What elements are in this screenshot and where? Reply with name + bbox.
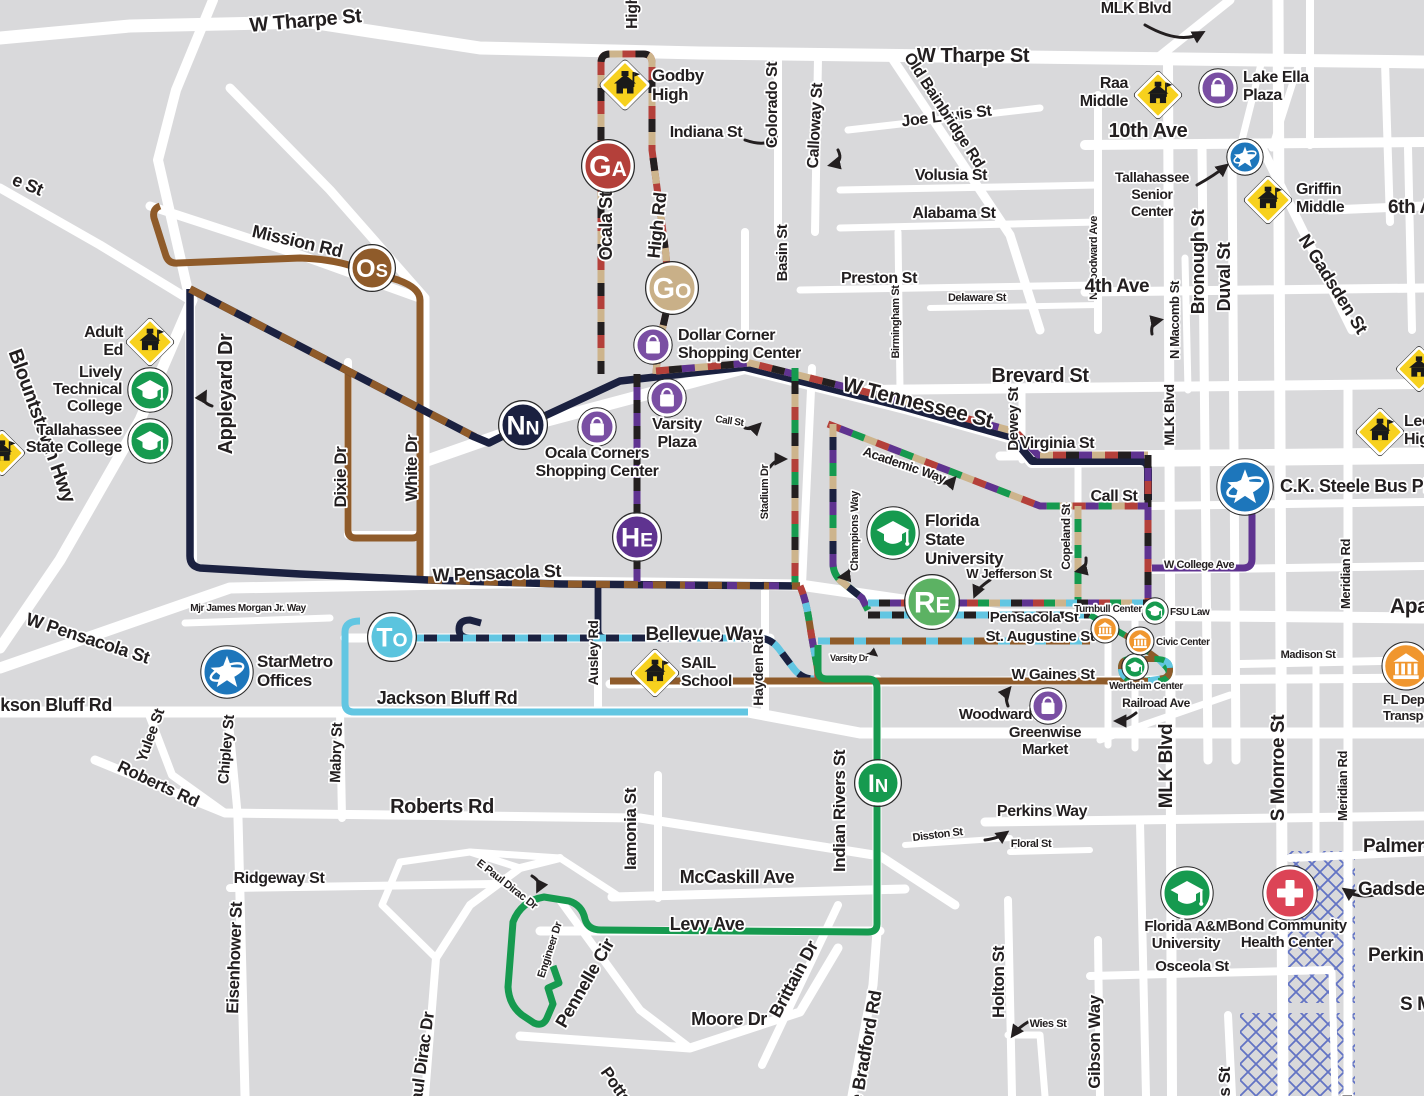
street-label: Perkins Way [997,803,1088,820]
street-label: Virginia St [1020,435,1096,452]
street-label: S Monroe St [1268,714,1289,822]
street-label: Volusia St [915,167,988,184]
street-label: Levy Ave [670,914,745,934]
ocala-corners-shopping-center-icon[interactable] [578,408,616,446]
bond-community-health-center-icon[interactable] [1263,866,1317,920]
street-label: S Ma [1400,994,1424,1015]
street-label: Perkins St [1368,945,1424,966]
street-label: Hayden Rd [750,636,766,706]
street-label: N Macomb St [1167,280,1182,359]
street-label: Copeland St [1059,504,1073,570]
street-label: Roberts Rd [390,796,494,818]
street-label: Palmer Ave [1363,836,1424,857]
street-label: 10th Ave [1109,120,1188,142]
street-label: Ocala St [596,191,616,260]
street-label: MLK Blvd [1161,384,1177,445]
starmetro-offices-icon[interactable] [201,646,253,698]
street-label: Apalachee [1390,595,1424,618]
street-label: Osceola St [1155,958,1229,975]
tallahassee-state-college-icon[interactable] [128,419,172,463]
street-label: High [624,0,641,29]
florida-am-university-icon[interactable] [1161,867,1213,919]
griffin-middle-label: GriffinMiddle [1296,181,1345,216]
street-label: Moore Dr [691,1009,767,1029]
civic-center-label: Civic Center [1156,637,1210,648]
lake-ella-plaza-icon[interactable] [1199,69,1237,107]
street-label: Pensacola St [990,609,1079,626]
route-badge-nn[interactable]: NN [499,401,548,450]
street-label: Meridian Rd [1335,751,1350,821]
street-label: Dixie Dr [331,446,350,508]
street-label: Stadium Dr [759,464,771,520]
varsity-plaza-label: VarsityPlaza [652,416,702,451]
street-label: Champions Way [849,490,861,571]
street-label: W Tharpe St [917,45,1030,67]
street-label: Bellevue Way [646,624,764,645]
route-badge-os[interactable]: OS [349,245,396,292]
street-label: Duval St [1214,242,1234,311]
street-label: St. Augustine St [986,628,1095,645]
route-badge-re[interactable]: RE [905,575,960,630]
fsu-law-icon[interactable] [1142,598,1168,624]
route-badge-in[interactable]: IN [855,760,902,807]
ocala-corners-shopping-center-label: Ocala CornersShopping Center [536,445,659,480]
varsity-plaza-icon[interactable] [648,379,686,417]
street-label: Mjr James Morgan Jr. Way [190,603,306,614]
street-label: Jackson Bluff Rd [0,695,112,715]
street-label: Preston St [841,270,918,287]
ck-steele-bus-plaza-icon[interactable] [1217,459,1273,515]
turnbull-center-icon[interactable] [1091,615,1119,643]
route-badge-os-code: OS [356,255,388,283]
route-badge-in-code: IN [868,770,888,798]
civic-center-icon[interactable] [1126,627,1154,655]
map-canvas: W Tharpe StW Tharpe StMLK BlvdHighOcala … [0,0,1424,1096]
street-label: Indian Rivers St [830,749,849,872]
street-label: Varsity Dr [830,653,869,663]
ck-steele-bus-plaza-label: C.K. Steele Bus Plaza [1280,476,1424,496]
wertheim-center-icon[interactable] [1122,654,1148,680]
street-label: Bronough St [1188,209,1208,314]
street-label: Colorado St [764,61,781,148]
street-label: Floral St [1011,838,1052,850]
street-label: Ausley Rd [585,621,601,686]
street-label: MLK Blvd [1101,0,1172,17]
fsu-law-label: FSU Law [1170,607,1210,618]
street-label: Alabama St [912,205,996,222]
street-label: W College Ave [1164,559,1235,571]
tallahassee-senior-center-icon[interactable] [1227,139,1263,175]
route-badge-to[interactable]: TO [368,613,417,662]
street-label: Mabry St [327,722,346,783]
street-label: Birmingham St [890,285,902,359]
route-badge-go[interactable]: GO [646,262,699,315]
dollar-corner-shopping-center-icon[interactable] [634,326,672,364]
street-label: 4th Ave [1085,276,1149,297]
wertheim-center-label: Wertheim Center [1109,681,1183,692]
street-label: Delaware St [948,292,1007,304]
street-label: Iamonia St [621,787,640,870]
florida-state-university-icon[interactable] [867,507,919,559]
street-label: W Jefferson St [966,566,1052,581]
street-label: Brevard St [991,365,1089,387]
street-label: Wies St [1030,1018,1068,1030]
street-label: MLK Blvd [1156,724,1177,808]
street-label: Gibson Way [1085,994,1104,1089]
street-label: Railroad Ave [1122,696,1190,710]
lively-technical-college-icon[interactable] [128,368,172,412]
street-label: Eisenhower St [223,901,246,1014]
leon-high-label: LeonHigh [1404,413,1424,448]
fl-dept-of-transportation-icon[interactable] [1382,642,1424,690]
street-label: W Gaines St [1011,666,1095,683]
street-label: Call St [1091,488,1139,505]
street-label: White Dr [402,434,421,501]
street-label: Ridgeway St [234,870,326,887]
turnbull-center-label: Turnbull Center [1074,604,1142,615]
route-badge-ga[interactable]: GA [582,140,635,193]
street-label: Indiana St [670,124,744,141]
transit-map: W Tharpe StW Tharpe StMLK BlvdHighOcala … [0,0,1424,1096]
street-label: Madison St [1281,649,1336,661]
florida-am-university-label: Florida A&MUniversity [1144,918,1227,952]
street-label: Holton St [989,945,1008,1018]
street-label: Basin St [774,224,791,281]
route-badge-he[interactable]: HE [613,513,662,562]
fl-dept-of-transportation-label: FL Dept ofTransportation [1383,692,1424,723]
street-label: S Adams St [1215,1066,1234,1096]
street-label: Meridian Rd [1338,539,1353,609]
street-label: Jackson Bluff Rd [377,688,518,708]
tallahassee-state-college-label: TallahasseeState College [26,422,123,456]
street-label: McCaskill Ave [680,867,795,887]
street-label: Appleyard Dr [215,333,237,454]
bond-community-health-center-label: Bond CommunityHealth Center [1227,917,1347,951]
street-label: Gadsden St [1358,879,1424,900]
street-label: 6th Ave [1388,197,1424,218]
greenwise-market-icon[interactable] [1030,688,1066,724]
